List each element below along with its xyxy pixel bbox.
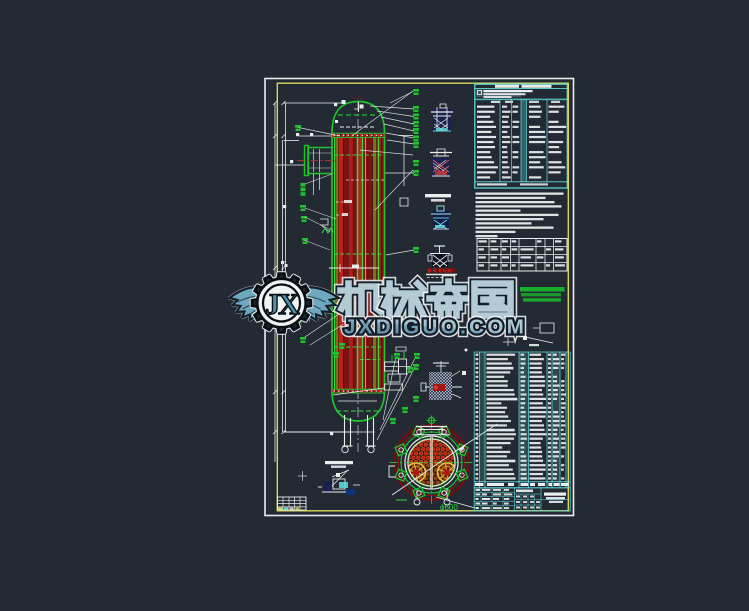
svg-text:JX: JX — [265, 288, 300, 321]
svg-text:JXDIGUO.COM: JXDIGUO.COM — [344, 316, 527, 339]
svg-text:ϕ600: ϕ600 — [440, 503, 458, 512]
